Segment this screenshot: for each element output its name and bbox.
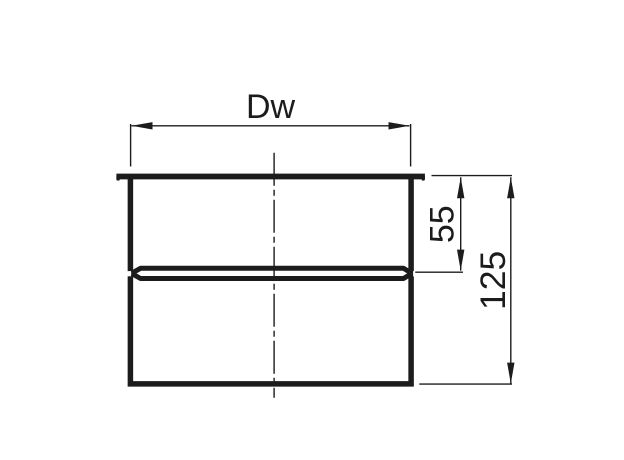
svg-text:125: 125 <box>473 251 513 310</box>
svg-text:55: 55 <box>423 205 461 243</box>
svg-text:Dw: Dw <box>246 88 296 126</box>
